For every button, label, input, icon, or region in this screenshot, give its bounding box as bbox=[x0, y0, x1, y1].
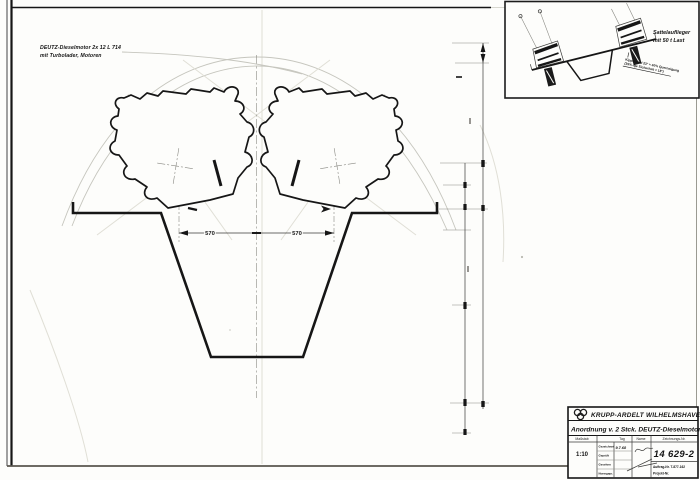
project-number: Projekt-Nr. bbox=[653, 472, 669, 476]
leader-note: DEUTZ-Dieselmotor 2x 12 L 714 mit Turbol… bbox=[40, 45, 302, 74]
engine-right bbox=[259, 87, 403, 208]
drawing-sheet: 570 570 DEUTZ-Dieselmotor 2x 12 L 714 mi… bbox=[0, 0, 700, 480]
date-value: 9.7.68 bbox=[616, 446, 627, 450]
scale-value: 1:10 bbox=[576, 452, 589, 458]
company-name: KRUPP-ARDELT WILHELMSHAVEN bbox=[591, 412, 700, 419]
technical-drawing: 570 570 DEUTZ-Dieselmotor 2x 12 L 714 mi… bbox=[0, 0, 700, 480]
dim-label-right: 570 bbox=[292, 231, 302, 237]
row-label-gezeichnet: Gezeichnet bbox=[599, 445, 614, 449]
trailer-well-profile bbox=[73, 202, 437, 357]
scale-label: Maßstab bbox=[575, 437, 588, 441]
inset-caption-line2: mit 50 t Last bbox=[653, 38, 685, 44]
dim-label-left: 570 bbox=[205, 231, 215, 237]
row-label-geprueft: Geprüft bbox=[599, 454, 609, 458]
engine-left bbox=[110, 87, 254, 208]
leader-note-line1: DEUTZ-Dieselmotor 2x 12 L 714 bbox=[40, 45, 121, 51]
tag-label: Tag bbox=[619, 437, 625, 441]
name-label: Name bbox=[636, 437, 645, 441]
leader-note-line2: mit Turbolader, Motoren bbox=[40, 53, 102, 59]
drawing-number: 14 629-2 bbox=[654, 449, 695, 460]
row-label-normgepr: Normgepr. bbox=[599, 472, 614, 476]
inset-caption-line1: Sattelauflieger bbox=[653, 30, 691, 36]
title-block: KRUPP-ARDELT WILHELMSHAVEN Anordnung v. … bbox=[568, 407, 700, 478]
row-label-gesehen: Gesehen bbox=[599, 463, 611, 467]
dimension-vertical-chains bbox=[439, 43, 489, 435]
drawing-title: Anordnung v. 2 Stck. DEUTZ-Dieselmotoren bbox=[570, 427, 700, 434]
drawing-no-label: Zeichnungs-Nr. bbox=[663, 437, 686, 441]
order-number: Auftrag-Nr. T-877-162 bbox=[653, 465, 685, 469]
inset-panel: Sattelauflieger mit 50 t Last Kippwinkel… bbox=[505, 0, 699, 98]
